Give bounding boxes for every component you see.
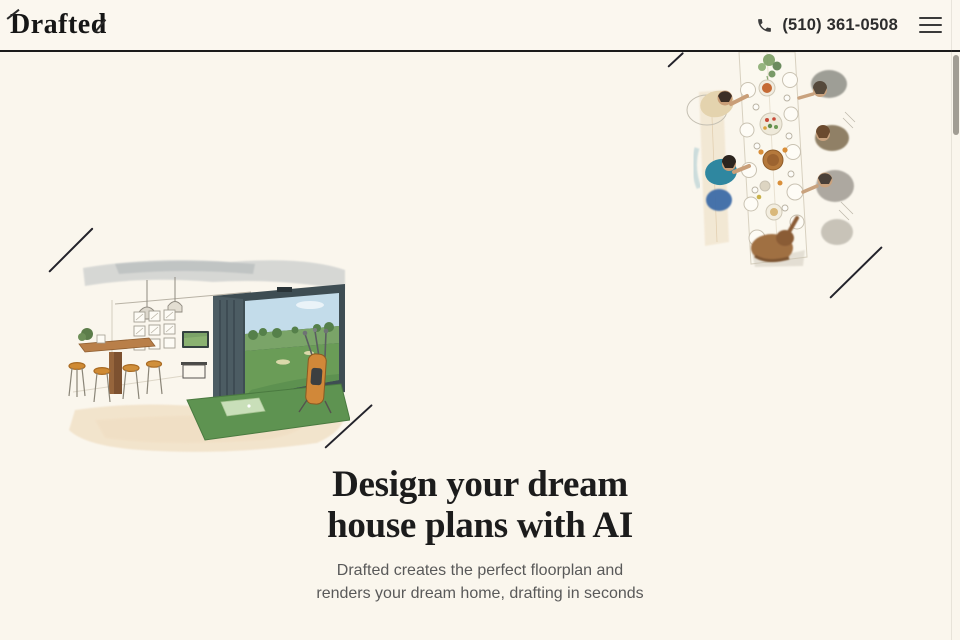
hero-text-block: Design your dream house plans with AI Dr… [0,464,960,605]
page-title-line1: Design your dream [0,464,960,505]
hero-subtext-line2: renders your dream home, drafting in sec… [0,582,960,605]
page-title: Design your dream house plans with AI [0,464,960,546]
golf-simulator-room-illustration [55,250,350,465]
family-dinner-overhead-illustration [677,52,862,268]
phone-link[interactable]: (510) 361-0508 [756,16,898,35]
hero-subtext: Drafted creates the perfect floorplan an… [0,559,960,605]
header: Drafted (510) 361-0508 [0,0,960,52]
logo[interactable]: Drafted [10,9,107,41]
header-actions: (510) 361-0508 [756,13,944,38]
hero-subtext-line1: Drafted creates the perfect floorplan an… [0,559,960,582]
logo-text: Drafted [10,9,107,40]
page-title-line2: house plans with AI [0,505,960,546]
hamburger-menu-icon [919,17,942,20]
phone-icon [756,17,773,34]
scrollbar-thumb[interactable] [953,55,959,135]
landing-page: Drafted (510) 361-0508 [0,0,960,640]
hamburger-menu-button[interactable] [917,13,944,38]
scrollbar-track[interactable] [951,0,960,640]
phone-number: (510) 361-0508 [782,16,898,35]
